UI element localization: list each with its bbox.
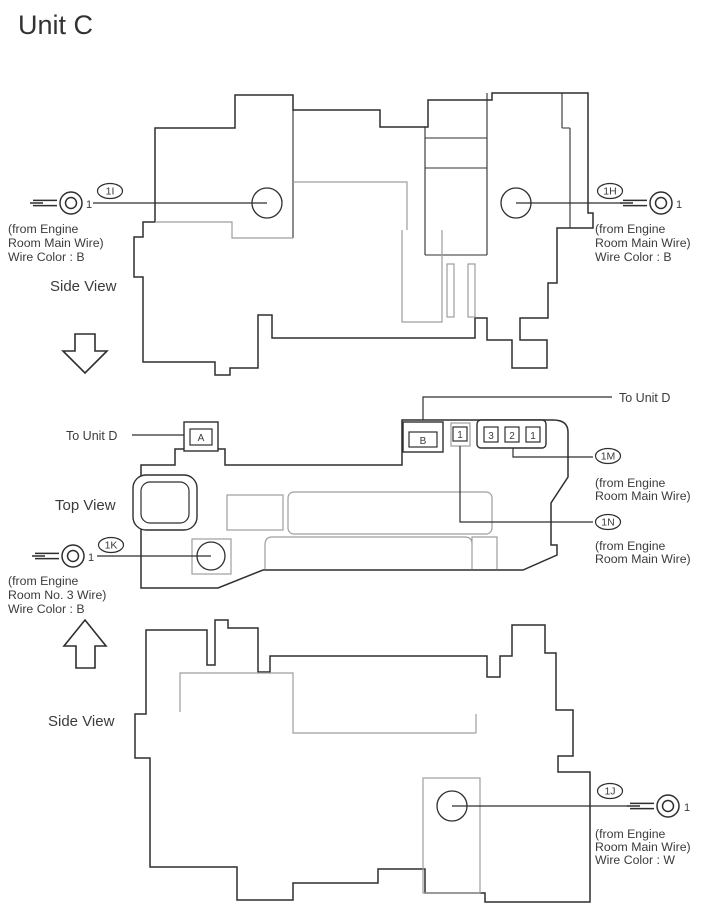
note-1h-line3: Wire Color : B [595, 250, 672, 264]
connector-a-label: A [198, 433, 205, 444]
ring-terminal-1h-icon [620, 192, 672, 214]
pin-number-1k: 1 [88, 552, 94, 564]
note-1h-line2: Room Main Wire) [595, 236, 691, 250]
note-1m-line1: (from Engine [595, 476, 666, 490]
note-1i-line3: Wire Color : B [8, 250, 85, 264]
side-view-bottom-diagram [135, 620, 590, 902]
unit-c-diagram-page: Unit C 1 1I (from Engine Room Main Wire)… [0, 0, 715, 912]
note-1j-line2: Room Main Wire) [595, 840, 691, 854]
connector-triple-label-3: 3 [488, 431, 494, 442]
connector-triple-label-1: 1 [530, 431, 536, 442]
top-view-label: Top View [55, 497, 116, 514]
note-1k-line1: (from Engine [8, 574, 79, 588]
note-1j-line3: Wire Color : W [595, 853, 675, 867]
note-1m-line2: Room Main Wire) [595, 489, 691, 503]
connector-triple-label-2: 2 [509, 431, 515, 442]
to-unit-d-right-label: To Unit D [619, 391, 670, 405]
side-view-top-diagram [134, 93, 593, 375]
callout-id-1k: 1K [105, 540, 118, 552]
pin-number-1h: 1 [676, 199, 682, 211]
page-title: Unit C [18, 10, 93, 40]
callout-id-1i: 1I [106, 186, 115, 198]
connector-b-label: B [420, 436, 427, 447]
to-unit-d-left-label: To Unit D [66, 429, 117, 443]
pin-number-1i: 1 [86, 199, 92, 211]
side-view-bottom-label: Side View [48, 713, 115, 730]
leader-to-unit-d-right [423, 397, 612, 420]
note-1h-line1: (from Engine [595, 222, 666, 236]
note-1i-line2: Room Main Wire) [8, 236, 104, 250]
note-1k-line2: Room No. 3 Wire) [8, 588, 106, 602]
pin-number-1j: 1 [684, 802, 690, 814]
connector-single-label: 1 [457, 430, 463, 441]
up-arrow-icon [64, 620, 106, 668]
down-arrow-icon [63, 334, 107, 373]
note-1n-line2: Room Main Wire) [595, 552, 691, 566]
callout-id-1n: 1N [601, 517, 614, 529]
callout-id-1m: 1M [601, 451, 616, 463]
callout-id-1h: 1H [603, 186, 616, 198]
top-view-relay-inner [141, 482, 189, 523]
note-1n-line1: (from Engine [595, 539, 666, 553]
callout-id-1j: 1J [604, 786, 615, 798]
top-view-diagram: A B 1 3 2 1 [132, 397, 612, 588]
ring-terminal-1j-icon [627, 795, 679, 817]
note-1k-line3: Wire Color : B [8, 602, 85, 616]
diagram-canvas: Unit C 1 1I (from Engine Room Main Wire)… [0, 0, 715, 912]
note-1i-line1: (from Engine [8, 222, 79, 236]
ring-terminal-1k-icon [32, 545, 84, 567]
ring-terminal-1i-icon [30, 192, 82, 214]
note-1j-line1: (from Engine [595, 827, 666, 841]
side-view-bottom-outline [135, 620, 590, 902]
side-view-top-label: Side View [50, 278, 117, 295]
side-view-top-outline [134, 93, 593, 375]
